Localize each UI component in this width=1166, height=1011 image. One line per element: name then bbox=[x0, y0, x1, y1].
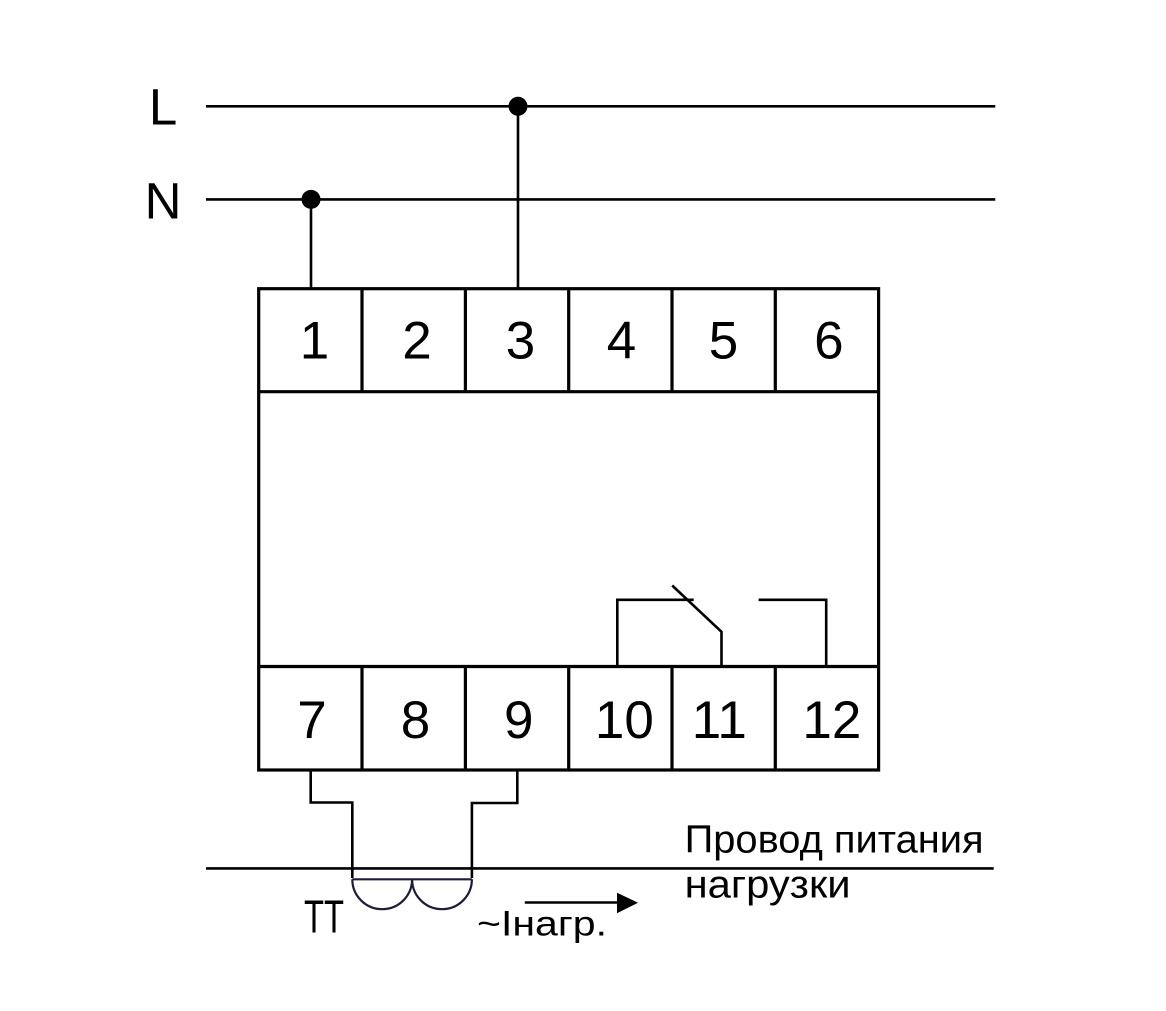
svg-text:5: 5 bbox=[709, 312, 738, 371]
svg-text:8: 8 bbox=[401, 691, 430, 750]
svg-text:нагрузки: нагрузки bbox=[685, 864, 851, 907]
svg-text:N: N bbox=[145, 173, 182, 230]
svg-text:Провод питания: Провод питания bbox=[685, 818, 984, 861]
svg-text:1: 1 bbox=[300, 312, 329, 371]
svg-text:2: 2 bbox=[402, 312, 431, 371]
svg-text:~Iнагр.: ~Iнагр. bbox=[477, 905, 607, 944]
svg-text:12: 12 bbox=[802, 691, 861, 750]
svg-text:3: 3 bbox=[506, 312, 535, 371]
svg-text:9: 9 bbox=[504, 691, 533, 750]
svg-text:TT: TT bbox=[304, 890, 344, 942]
svg-text:4: 4 bbox=[607, 312, 636, 371]
svg-text:11: 11 bbox=[692, 691, 747, 750]
svg-text:10: 10 bbox=[595, 691, 654, 750]
svg-text:L: L bbox=[149, 79, 177, 136]
svg-text:7: 7 bbox=[297, 691, 326, 750]
svg-text:6: 6 bbox=[814, 312, 843, 371]
